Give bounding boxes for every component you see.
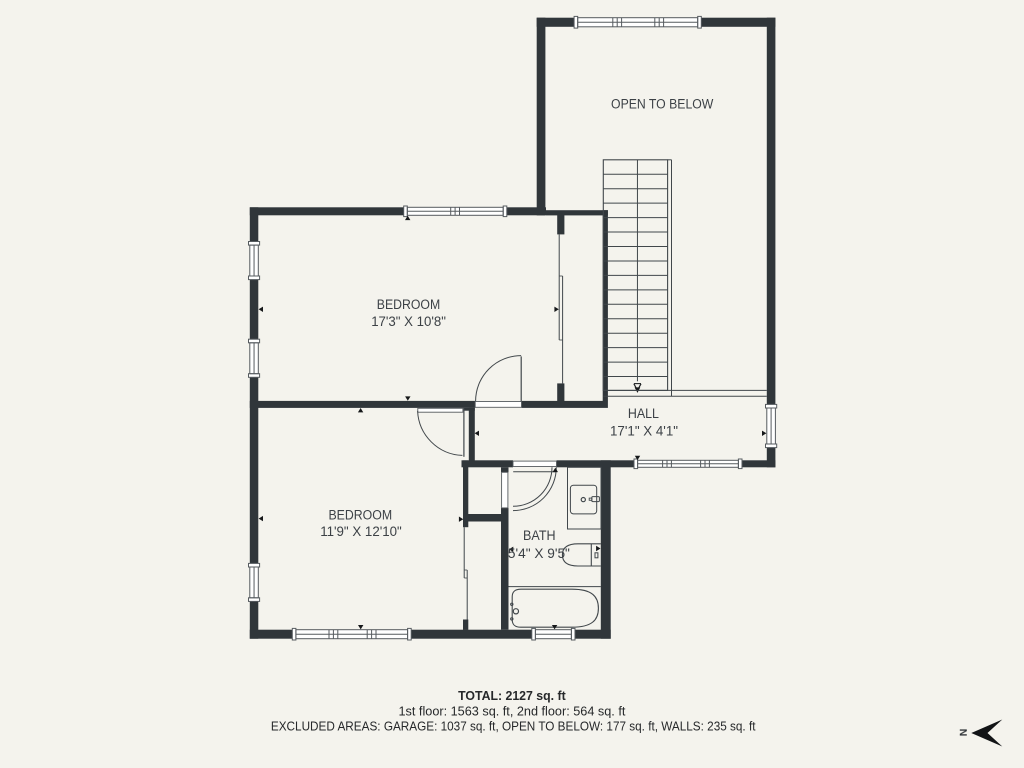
svg-text:17'1" X 4'1": 17'1" X 4'1" (610, 424, 678, 439)
svg-text:OPEN TO BELOW: OPEN TO BELOW (611, 97, 714, 112)
svg-text:11'9" X 12'10": 11'9" X 12'10" (320, 524, 402, 539)
svg-text:BATH: BATH (523, 528, 556, 543)
svg-text:BEDROOM: BEDROOM (328, 507, 392, 522)
svg-text:5'4" X 9'5": 5'4" X 9'5" (508, 546, 570, 561)
svg-text:HALL: HALL (628, 406, 659, 421)
svg-text:BEDROOM: BEDROOM (377, 297, 440, 312)
svg-text:TOTAL: 2127 sq. ft: TOTAL: 2127 sq. ft (458, 688, 566, 703)
svg-text:17'3" X 10'8": 17'3" X 10'8" (371, 314, 446, 329)
svg-text:N: N (957, 729, 969, 737)
svg-text:1st floor: 1563 sq. ft, 2nd fl: 1st floor: 1563 sq. ft, 2nd floor: 564 s… (399, 704, 626, 719)
svg-text:EXCLUDED AREAS: GARAGE: 1037 s: EXCLUDED AREAS: GARAGE: 1037 sq. ft, OPE… (271, 718, 756, 733)
